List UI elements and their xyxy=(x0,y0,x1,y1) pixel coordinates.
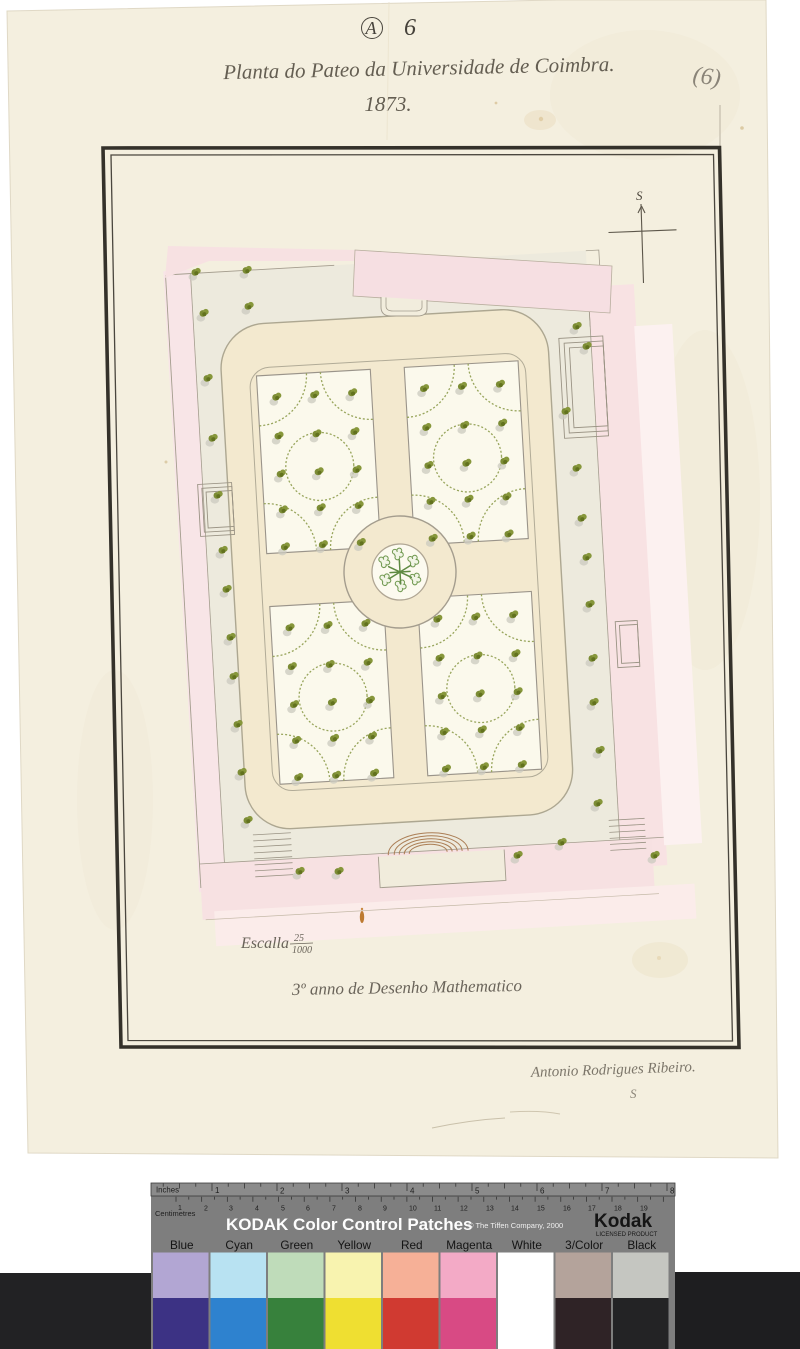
svg-text:5: 5 xyxy=(281,1206,285,1213)
svg-text:3: 3 xyxy=(229,1206,233,1213)
svg-text:(6): (6) xyxy=(691,62,722,92)
svg-text:4: 4 xyxy=(255,1206,259,1213)
svg-text:Escalla: Escalla xyxy=(240,935,289,952)
svg-text:2: 2 xyxy=(280,1187,285,1196)
svg-text:14: 14 xyxy=(511,1206,519,1213)
svg-text:S: S xyxy=(636,188,643,203)
svg-text:3/Color: 3/Color xyxy=(565,1238,603,1252)
svg-text:6: 6 xyxy=(404,15,416,41)
svg-text:10: 10 xyxy=(409,1206,417,1213)
svg-text:Yellow: Yellow xyxy=(337,1238,371,1252)
svg-text:KODAK Color Control Patches: KODAK Color Control Patches xyxy=(226,1215,473,1234)
svg-text:1000: 1000 xyxy=(292,945,312,956)
svg-text:5: 5 xyxy=(475,1187,480,1196)
svg-text:7: 7 xyxy=(605,1187,610,1196)
svg-text:8: 8 xyxy=(670,1187,675,1196)
svg-text:Inches: Inches xyxy=(156,1186,179,1195)
svg-text:1: 1 xyxy=(215,1186,220,1195)
svg-text:11: 11 xyxy=(434,1206,441,1213)
svg-text:8: 8 xyxy=(358,1206,362,1213)
svg-text:4: 4 xyxy=(410,1187,415,1196)
svg-text:15: 15 xyxy=(537,1206,545,1213)
svg-text:13: 13 xyxy=(486,1206,494,1213)
svg-text:7: 7 xyxy=(332,1206,336,1213)
svg-text:9: 9 xyxy=(383,1206,387,1213)
svg-text:Blue: Blue xyxy=(170,1238,194,1252)
svg-text:Magenta: Magenta xyxy=(446,1238,492,1252)
svg-text:25: 25 xyxy=(294,933,304,944)
svg-text:S: S xyxy=(630,1086,637,1101)
svg-text:Green: Green xyxy=(280,1238,313,1252)
svg-text:3: 3 xyxy=(345,1187,350,1196)
svg-text:Centimetres: Centimetres xyxy=(155,1209,196,1218)
svg-text:Cyan: Cyan xyxy=(225,1238,253,1252)
svg-text:Black: Black xyxy=(627,1238,656,1252)
svg-text:A: A xyxy=(365,18,378,38)
svg-text:6: 6 xyxy=(306,1206,310,1213)
svg-text:Kodak: Kodak xyxy=(594,1211,653,1232)
svg-text:12: 12 xyxy=(460,1206,468,1213)
svg-text:© The Tiffen Company, 2000: © The Tiffen Company, 2000 xyxy=(468,1221,563,1230)
svg-text:2: 2 xyxy=(204,1206,208,1213)
svg-text:16: 16 xyxy=(563,1206,571,1213)
svg-text:3º anno de Desenho Mathematico: 3º anno de Desenho Mathematico xyxy=(291,976,522,999)
svg-text:6: 6 xyxy=(540,1187,545,1196)
svg-text:Red: Red xyxy=(401,1238,423,1252)
svg-text:White: White xyxy=(512,1238,543,1252)
svg-text:1: 1 xyxy=(178,1205,182,1212)
